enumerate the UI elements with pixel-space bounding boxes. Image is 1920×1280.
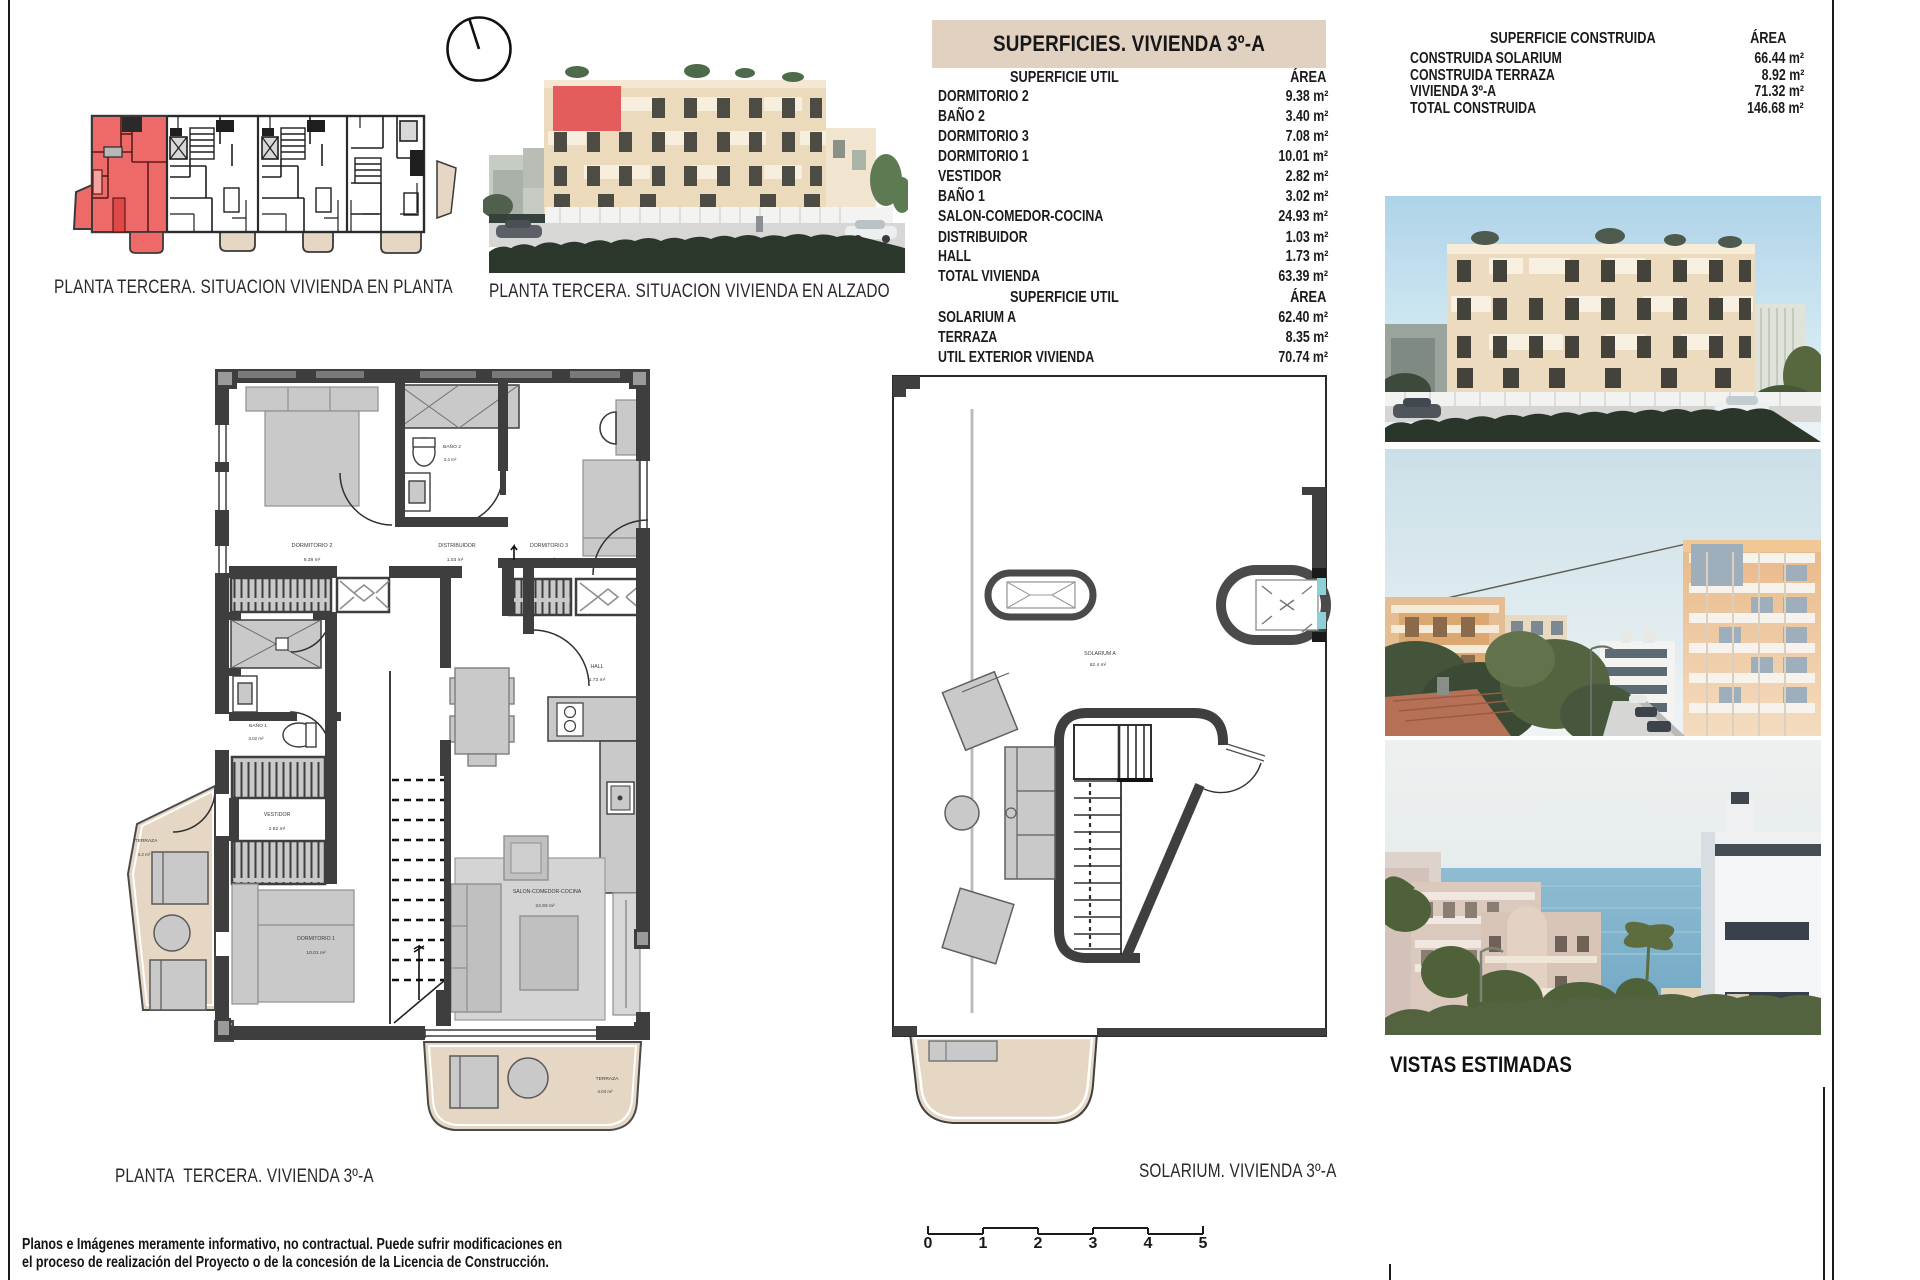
svg-text:10.01 m²: 10.01 m² [306,950,326,956]
svg-text:TERRAZA: TERRAZA [596,1076,620,1082]
svg-text:VESTIDOR: VESTIDOR [264,812,291,818]
svg-text:4.04 m²: 4.04 m² [597,1089,613,1094]
svg-text:BAÑO 1: BAÑO 1 [249,722,267,729]
svg-text:2.82 m²: 2.82 m² [269,826,286,832]
svg-text:5: 5 [1199,1235,1208,1252]
svg-text:4: 4 [1144,1235,1153,1252]
svg-text:DORMITORIO 2: DORMITORIO 2 [292,543,333,549]
svg-text:1.73 m²: 1.73 m² [589,677,606,683]
svg-text:4.2 m²: 4.2 m² [138,852,151,857]
svg-text:0: 0 [924,1235,933,1252]
svg-text:2: 2 [1034,1235,1043,1252]
svg-text:1.03 m²: 1.03 m² [447,557,464,563]
svg-text:7.08 m²: 7.08 m² [539,557,556,563]
svg-text:3: 3 [1089,1235,1098,1252]
svg-text:9.38 m²: 9.38 m² [304,557,321,563]
svg-text:62.4 m²: 62.4 m² [1090,662,1107,668]
svg-text:SOLARIUM A: SOLARIUM A [1084,651,1116,657]
svg-text:BAÑO 2: BAÑO 2 [443,443,461,450]
svg-text:TERRAZA: TERRAZA [135,838,159,844]
svg-text:3.4 m²: 3.4 m² [444,457,457,462]
svg-text:24.93 m²: 24.93 m² [535,903,555,909]
svg-text:3.02 m²: 3.02 m² [248,736,264,741]
svg-text:SALON-COMEDOR-COCINA: SALON-COMEDOR-COCINA [513,889,582,895]
svg-text:DISTRIBUIDOR: DISTRIBUIDOR [438,543,475,549]
svg-text:HALL: HALL [591,664,604,670]
svg-text:1: 1 [979,1235,988,1252]
svg-text:DORMITORIO 3: DORMITORIO 3 [530,543,568,549]
svg-text:DORMITORIO 1: DORMITORIO 1 [297,936,335,942]
